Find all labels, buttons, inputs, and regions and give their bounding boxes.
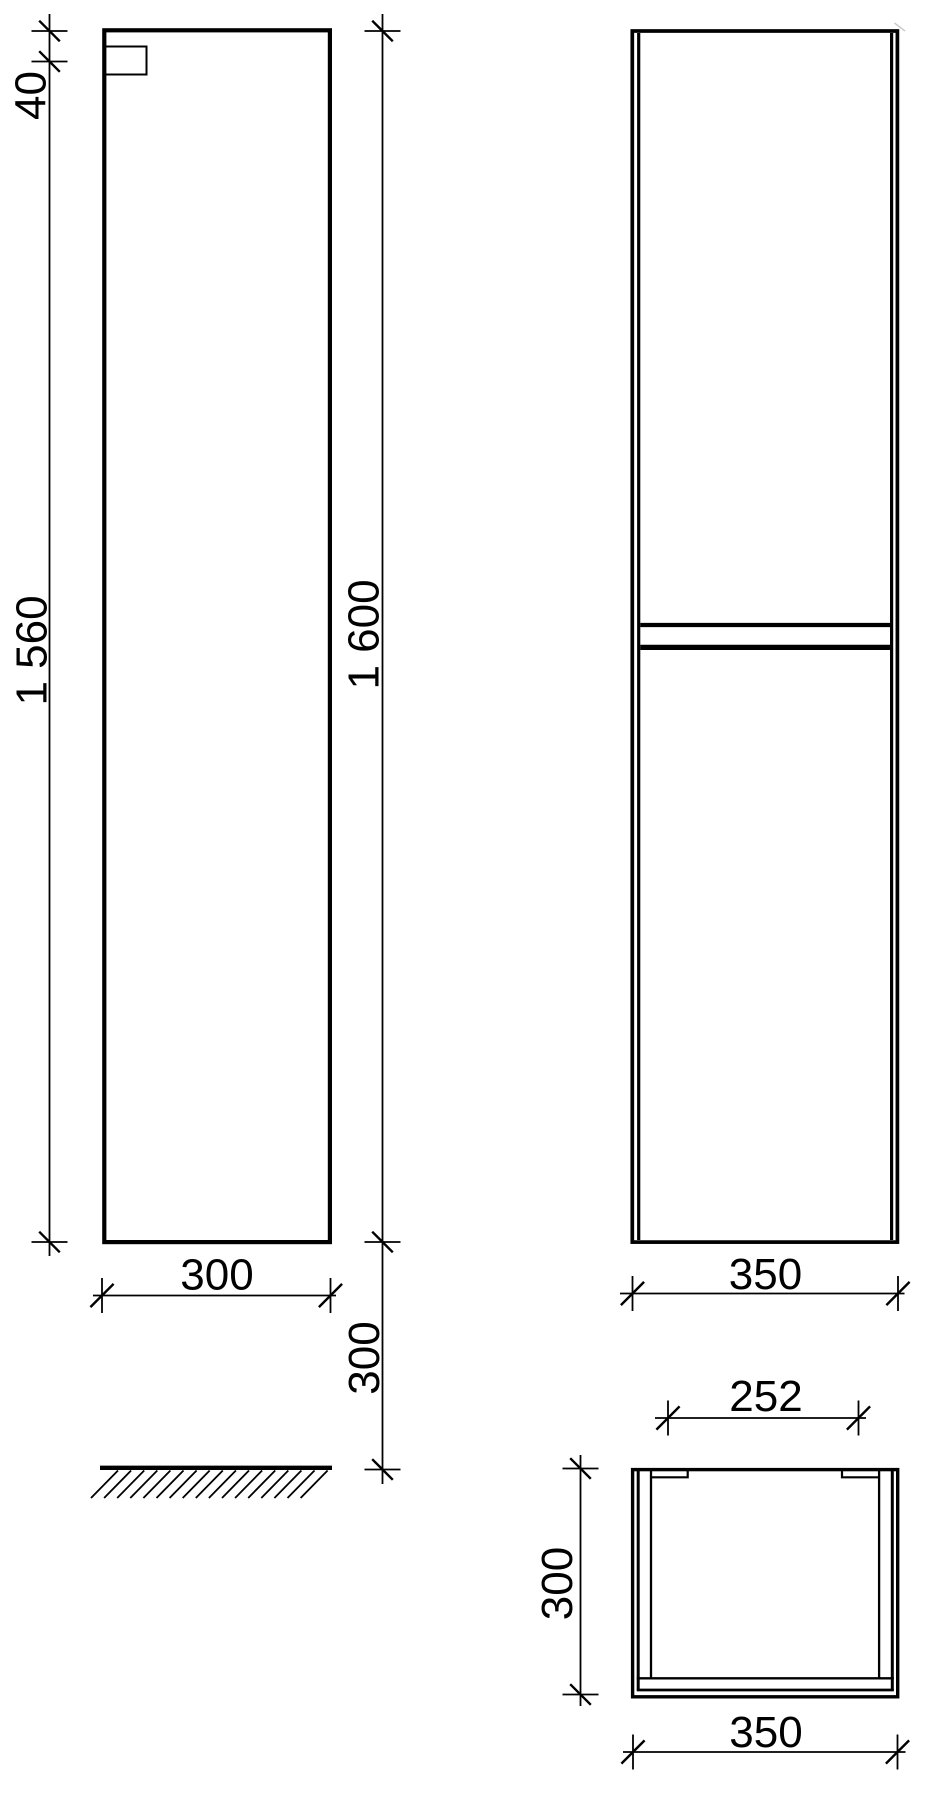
svg-text:350: 350 bbox=[729, 1708, 802, 1757]
svg-text:300: 300 bbox=[533, 1547, 582, 1620]
svg-text:350: 350 bbox=[729, 1250, 802, 1299]
svg-text:300: 300 bbox=[180, 1251, 253, 1300]
svg-text:300: 300 bbox=[340, 1321, 389, 1394]
svg-text:1 560: 1 560 bbox=[8, 595, 57, 705]
svg-text:252: 252 bbox=[729, 1372, 802, 1421]
svg-text:40: 40 bbox=[7, 71, 56, 120]
svg-text:1 600: 1 600 bbox=[340, 579, 389, 689]
